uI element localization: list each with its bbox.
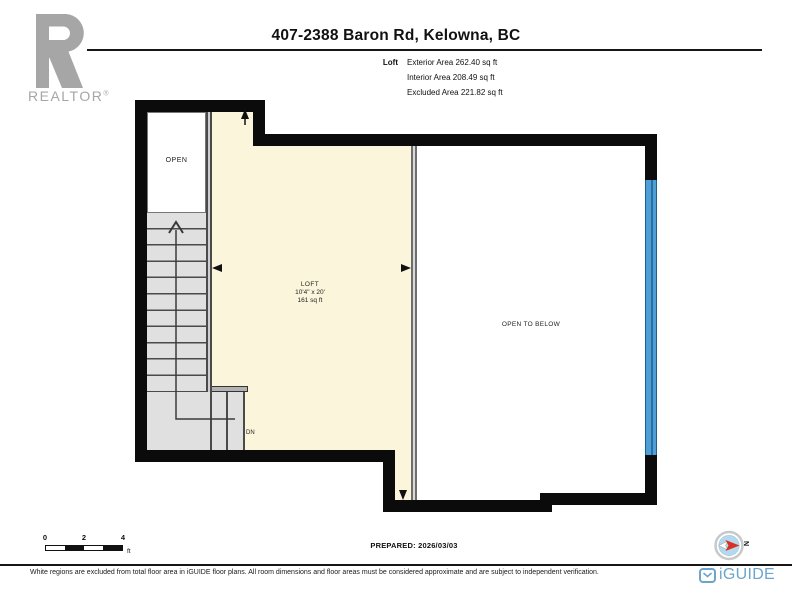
- prepared-date: PREPARED: 2026/03/03: [294, 541, 534, 550]
- header-divider: [87, 49, 762, 51]
- scale-unit: ft: [127, 548, 131, 555]
- registered-mark: ®: [103, 90, 110, 97]
- scale-bar: [45, 545, 123, 551]
- realtor-r-icon: [30, 14, 87, 88]
- room-name: LOFT: [250, 281, 370, 289]
- loft-floor-area: [395, 450, 412, 500]
- stairs-down-label: DN: [246, 430, 255, 436]
- wall-segment: [253, 134, 657, 146]
- room-area: 161 sq ft: [250, 297, 370, 305]
- stair-tread-line: [226, 392, 228, 450]
- stair-tread-line: [210, 392, 212, 450]
- floor-plan-page: REALTOR® 407-2388 Baron Rd, Kelowna, BC …: [0, 0, 792, 612]
- iguide-logo-icon: [699, 568, 716, 583]
- wall-segment: [135, 100, 147, 462]
- wall-segment: [383, 500, 552, 512]
- interior-wall: [206, 112, 212, 392]
- page-title: 407-2388 Baron Rd, Kelowna, BC: [0, 27, 792, 45]
- wall-segment: [645, 134, 657, 180]
- wall-segment: [540, 493, 657, 505]
- legend-interior-area: Interior Area 208.49 sq ft: [407, 70, 503, 85]
- legend-exterior-area: Exterior Area 262.40 sq ft: [407, 55, 503, 70]
- scale-tick: 0: [43, 533, 47, 542]
- staircase: [147, 213, 206, 392]
- legend-excluded-area: Excluded Area 221.82 sq ft: [407, 85, 503, 100]
- scale-bar-segment: [46, 546, 65, 550]
- realtor-logo-text: REALTOR®: [28, 88, 110, 104]
- loft-railing: [411, 146, 417, 500]
- footer-divider: [0, 564, 792, 566]
- loft-label: LOFT 10'4" x 20' 161 sq ft: [250, 281, 370, 305]
- scale-bar-segment: [65, 546, 84, 550]
- open-label: OPEN: [147, 157, 206, 164]
- compass-north-label: N: [742, 541, 749, 546]
- room-dimensions: 10'4" x 20': [250, 289, 370, 297]
- scale-bar-segment: [103, 546, 122, 550]
- stair-landing: [147, 392, 245, 450]
- open-to-below-label: OPEN TO BELOW: [455, 321, 607, 328]
- iguide-logo: iGUIDE: [699, 566, 775, 584]
- legend-rows: Exterior Area 262.40 sq ft Interior Area…: [407, 55, 503, 100]
- scale-tick: 4: [121, 533, 125, 542]
- wall-segment: [135, 100, 265, 112]
- disclaimer-text: White regions are excluded from total fl…: [30, 569, 680, 576]
- area-legend: Loft Exterior Area 262.40 sq ft Interior…: [340, 55, 503, 100]
- scale-tick: 2: [82, 533, 86, 542]
- iguide-logo-text: iGUIDE: [719, 566, 775, 584]
- window-marker: [645, 180, 657, 455]
- scale-bar-segment: [84, 546, 103, 550]
- legend-floor-label: Loft: [340, 55, 398, 100]
- wall-segment: [135, 450, 395, 462]
- half-wall-cap: [206, 386, 248, 392]
